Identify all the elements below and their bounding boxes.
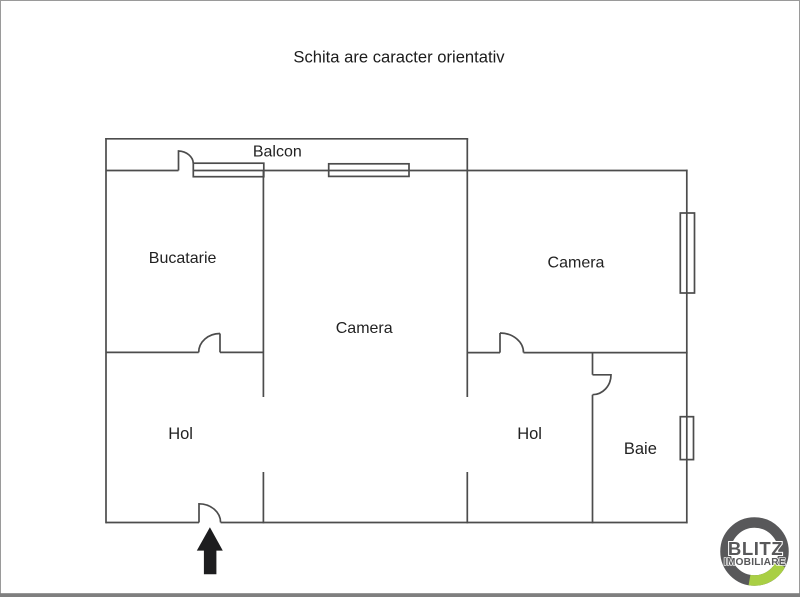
svg-text:Bucatarie: Bucatarie [149, 250, 217, 267]
svg-text:IMOBILIARE: IMOBILIARE [724, 557, 786, 568]
svg-text:Balcon: Balcon [253, 143, 302, 160]
svg-text:BLITZ: BLITZ [728, 538, 783, 559]
svg-text:Hol: Hol [168, 425, 193, 443]
svg-text:Schita are caracter orientativ: Schita are caracter orientativ [293, 47, 505, 66]
svg-text:Camera: Camera [548, 255, 605, 272]
svg-text:Hol: Hol [517, 425, 542, 443]
svg-text:Camera: Camera [336, 320, 393, 337]
svg-text:Baie: Baie [624, 440, 657, 458]
